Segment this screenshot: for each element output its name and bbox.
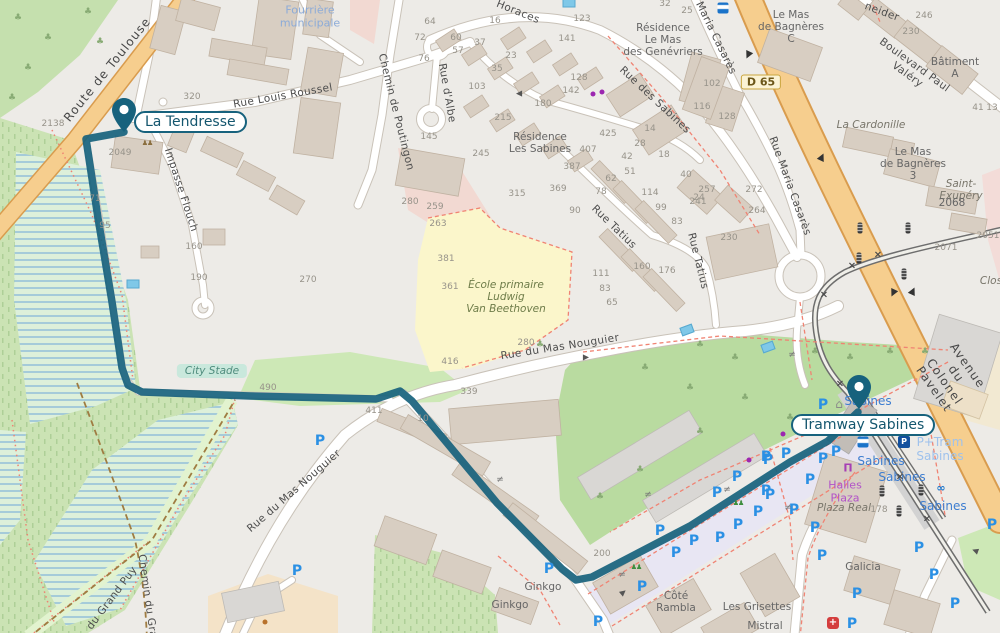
map-canvas[interactable]: Route de ToulouseRue Louis RousselImpass… [0, 0, 1000, 633]
marker-label-la-tendresse[interactable]: La Tendresse [134, 111, 247, 133]
marker-label-tramway-sabines[interactable]: Tramway Sabines [791, 414, 935, 436]
map-base-layer [0, 0, 1000, 633]
route-ref-badge: D 65 [741, 75, 781, 90]
